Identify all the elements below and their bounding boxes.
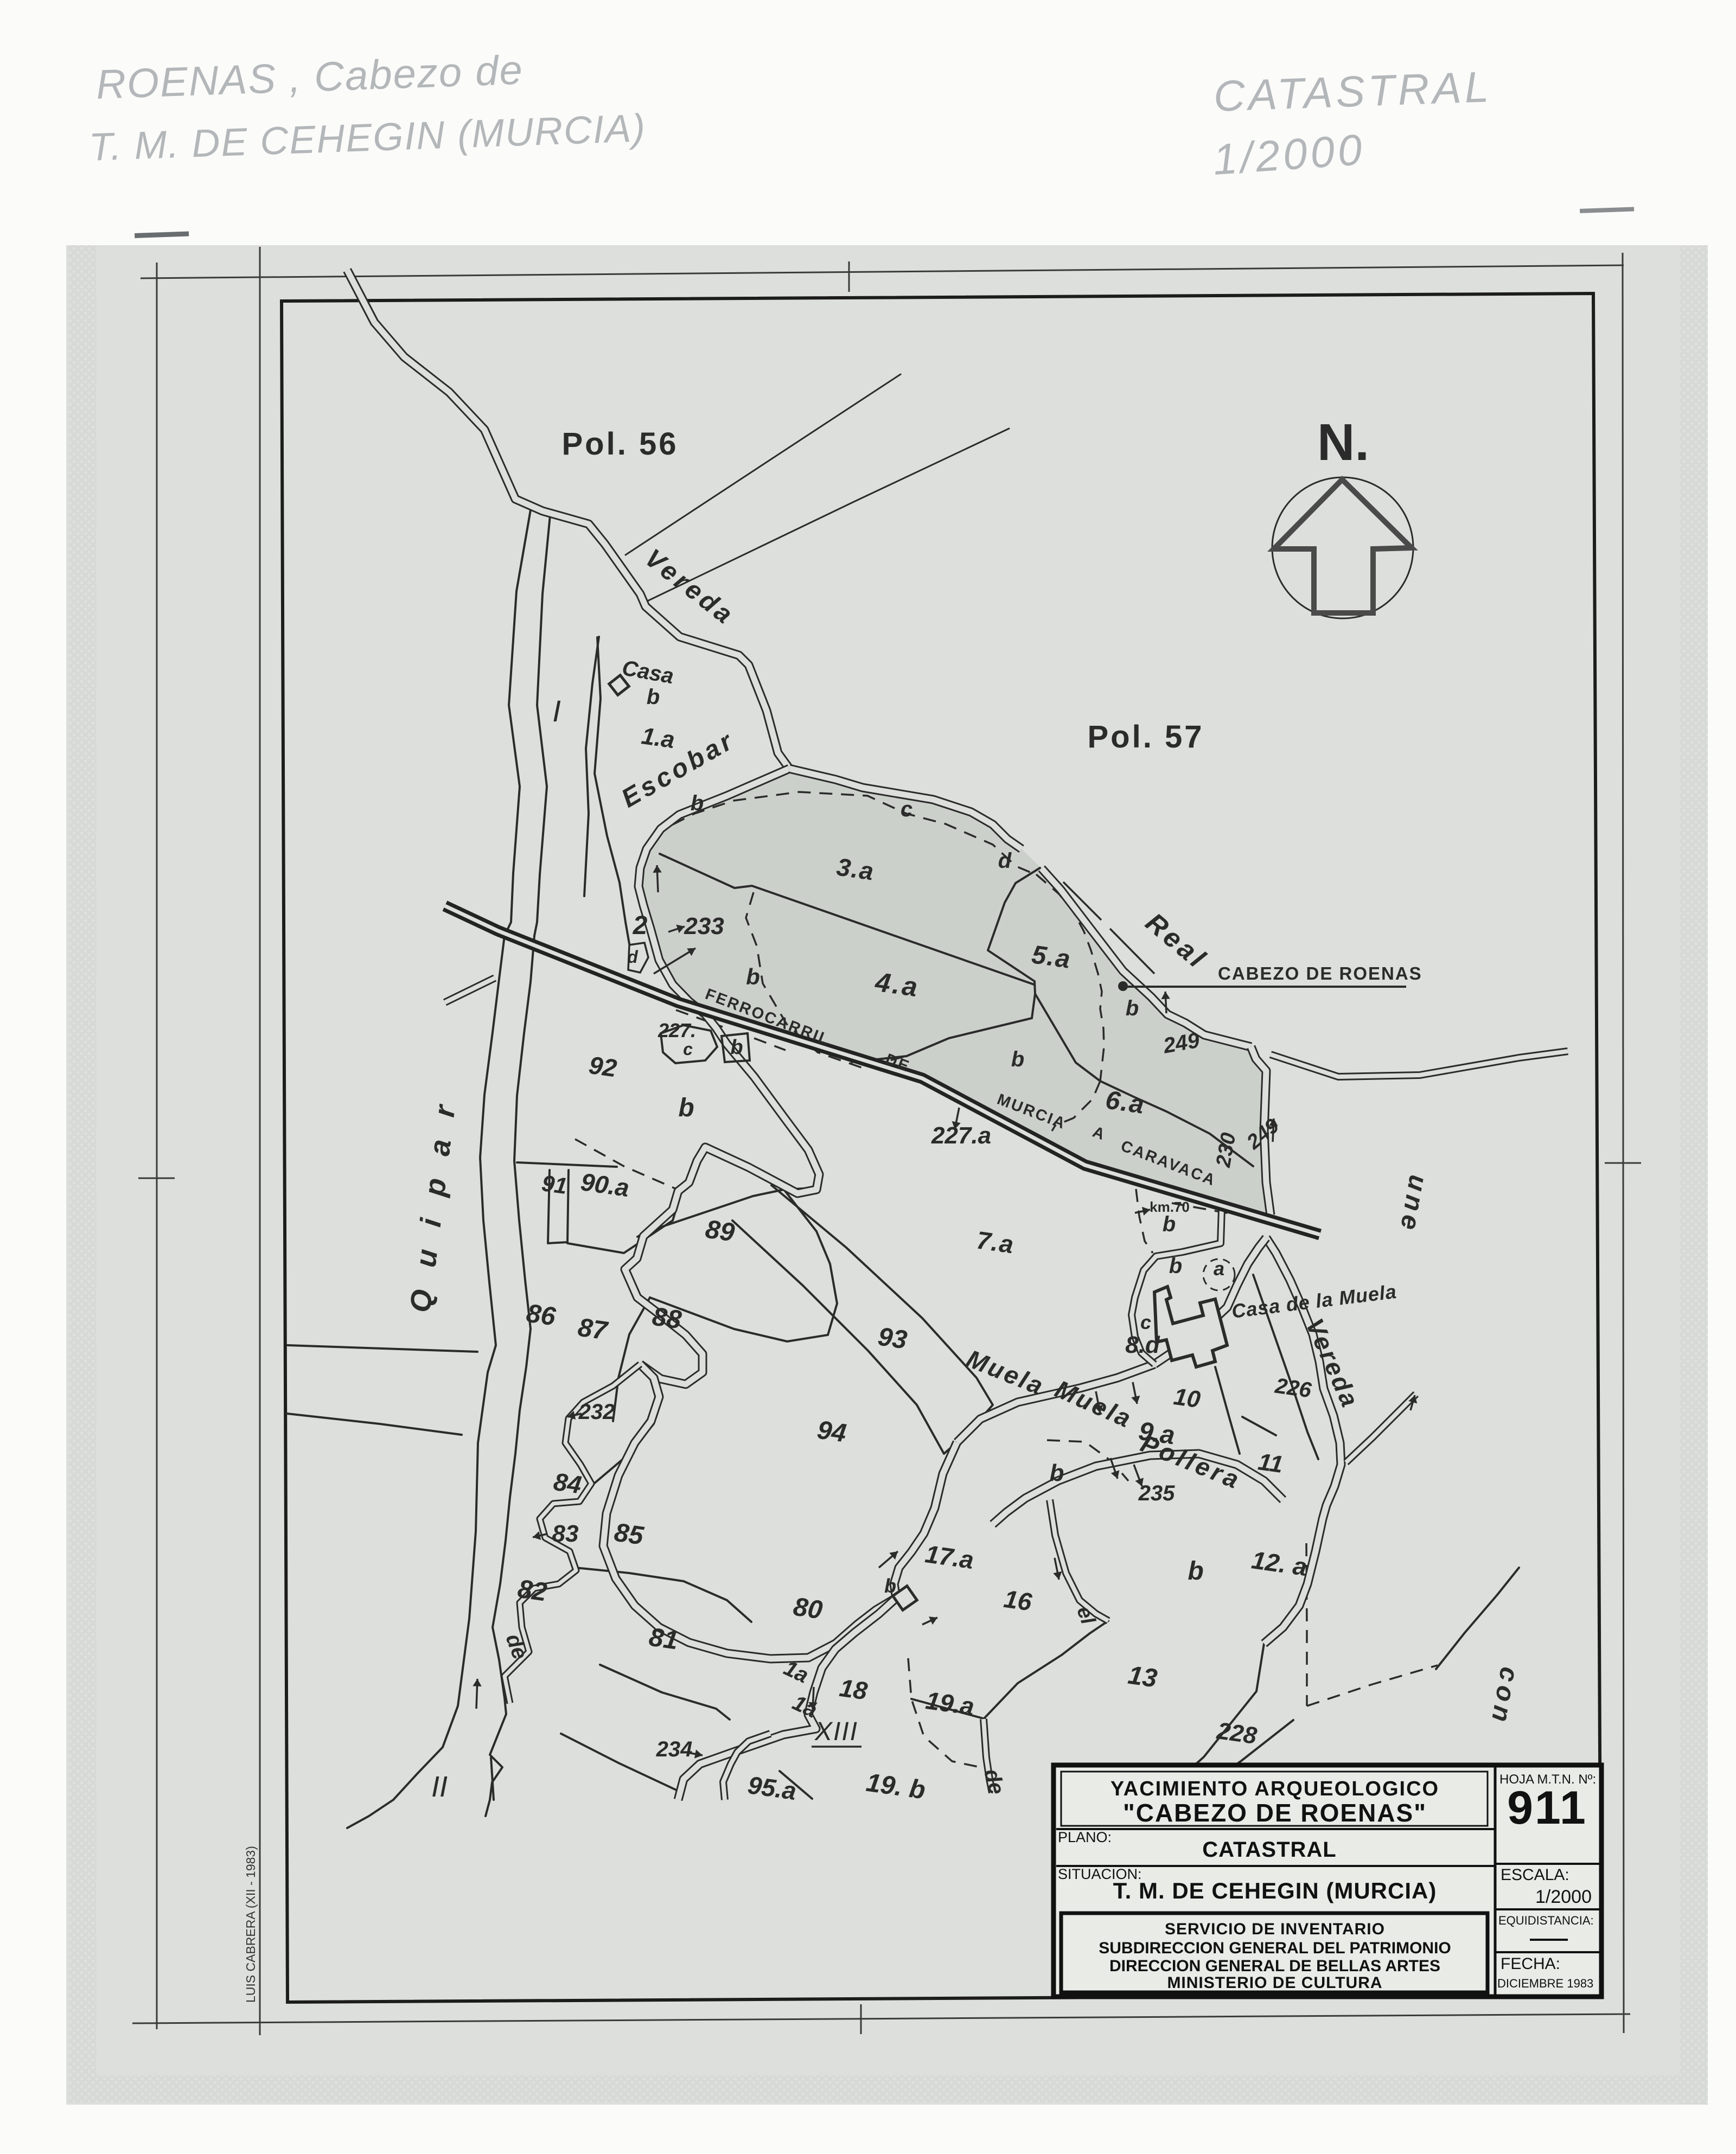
svg-text:6.a: 6.a [1103,1085,1146,1120]
svg-text:c: c [901,797,912,821]
svg-text:233: 233 [684,913,724,939]
svg-text:FECHA:: FECHA: [1501,1955,1560,1973]
svg-text:85: 85 [612,1518,646,1551]
svg-text:2: 2 [633,911,648,940]
svg-text:227.a: 227.a [931,1122,991,1149]
svg-text:ESCALA:: ESCALA: [1501,1866,1569,1884]
svg-text:b: b [1011,1047,1024,1071]
svg-text:b: b [1188,1557,1203,1586]
svg-text:88: 88 [650,1302,684,1335]
svg-text:89: 89 [704,1215,737,1248]
svg-text:228: 228 [1215,1717,1259,1749]
svg-text:10: 10 [1172,1383,1202,1413]
svg-text:84: 84 [552,1467,583,1499]
svg-text:b: b [730,1036,743,1059]
svg-text:11: 11 [1256,1448,1285,1478]
svg-text:91: 91 [540,1170,569,1199]
svg-text:c: c [1140,1311,1151,1333]
svg-text:86: 86 [525,1299,558,1332]
svg-text:c: c [683,1039,693,1059]
svg-text:PLANO:: PLANO: [1058,1829,1112,1845]
svg-text:CATASTRAL: CATASTRAL [1202,1838,1336,1862]
svg-text:b: b [746,964,760,989]
svg-text:232: 232 [578,1400,615,1424]
svg-text:SITUACION:: SITUACION: [1058,1866,1142,1882]
svg-text:b: b [647,685,660,709]
svg-text:XIII: XIII [814,1717,858,1746]
svg-text:YACIMIENTO ARQUEOLOGICO: YACIMIENTO ARQUEOLOGICO [1110,1778,1439,1800]
svg-text:81: 81 [647,1623,680,1656]
svg-text:94: 94 [815,1416,848,1448]
svg-text:1.a: 1.a [640,723,676,753]
svg-text:911: 911 [1507,1782,1587,1834]
svg-text:CATASTRAL: CATASTRAL [1212,62,1492,120]
svg-text:b: b [678,1094,694,1122]
svg-text:234: 234 [656,1737,693,1761]
svg-text:227.: 227. [658,1019,696,1041]
svg-text:HOJA M.T.N. Nº:: HOJA M.T.N. Nº: [1499,1772,1596,1787]
svg-text:MINISTERIO DE CULTURA: MINISTERIO DE CULTURA [1167,1974,1382,1992]
svg-text:87: 87 [576,1313,610,1346]
svg-text:92: 92 [587,1051,618,1083]
svg-text:93: 93 [876,1322,909,1355]
svg-text:b: b [1050,1460,1064,1486]
svg-text:a: a [1214,1257,1224,1280]
svg-text:II: II [431,1771,448,1803]
svg-text:b: b [884,1575,896,1597]
svg-text:DICIEMBRE 1983: DICIEMBRE 1983 [1497,1977,1593,1990]
svg-text:d: d [998,849,1012,873]
svg-text:80: 80 [792,1593,825,1625]
svg-text:3.a: 3.a [835,853,877,886]
svg-text:8.d: 8.d [1125,1332,1160,1358]
svg-text:83: 83 [552,1520,579,1547]
svg-text:DIRECCION GENERAL DE BELLAS: DIRECCION GENERAL DE BELLAS ARTES [1109,1957,1440,1975]
svg-text:SERVICIO DE INVENTARIO: SERVICIO DE INVENTARIO [1165,1920,1385,1938]
svg-text:I: I [552,694,561,728]
svg-text:b: b [691,791,704,815]
svg-text:SUBDIRECCION GENERAL DEL PA: SUBDIRECCION GENERAL DEL PATRIMONIO [1099,1939,1451,1957]
svg-text:T. M. DE CEHEGIN (MURCIA): T. M. DE CEHEGIN (MURCIA) [1113,1878,1437,1903]
svg-text:b: b [1169,1254,1182,1278]
svg-text:82: 82 [516,1575,549,1607]
svg-text:18: 18 [838,1673,869,1705]
svg-text:4.a: 4.a [873,967,922,1003]
svg-text:d: d [627,947,639,967]
svg-text:CABEZO DE ROENAS: CABEZO DE ROENAS [1218,963,1422,983]
svg-text:N.: N. [1317,413,1369,471]
svg-text:Pol. 57: Pol. 57 [1088,719,1204,755]
svg-text:5.a: 5.a [1030,940,1073,974]
svg-text:"CABEZO DE ROENAS": "CABEZO DE ROENAS" [1123,1799,1427,1827]
svg-text:LUIS CABRERA (XII - 1983): LUIS CABRERA (XII - 1983) [244,1846,258,2003]
svg-text:16: 16 [1002,1584,1033,1616]
svg-text:b: b [1163,1212,1176,1236]
svg-text:13: 13 [1126,1661,1159,1693]
svg-text:EQUIDISTANCIA:: EQUIDISTANCIA: [1498,1914,1594,1927]
svg-text:b: b [1126,996,1139,1020]
svg-text:7.a: 7.a [975,1226,1017,1259]
svg-text:1/2000: 1/2000 [1535,1887,1592,1907]
svg-text:Pol. 56: Pol. 56 [562,426,679,462]
svg-text:235: 235 [1138,1481,1175,1505]
